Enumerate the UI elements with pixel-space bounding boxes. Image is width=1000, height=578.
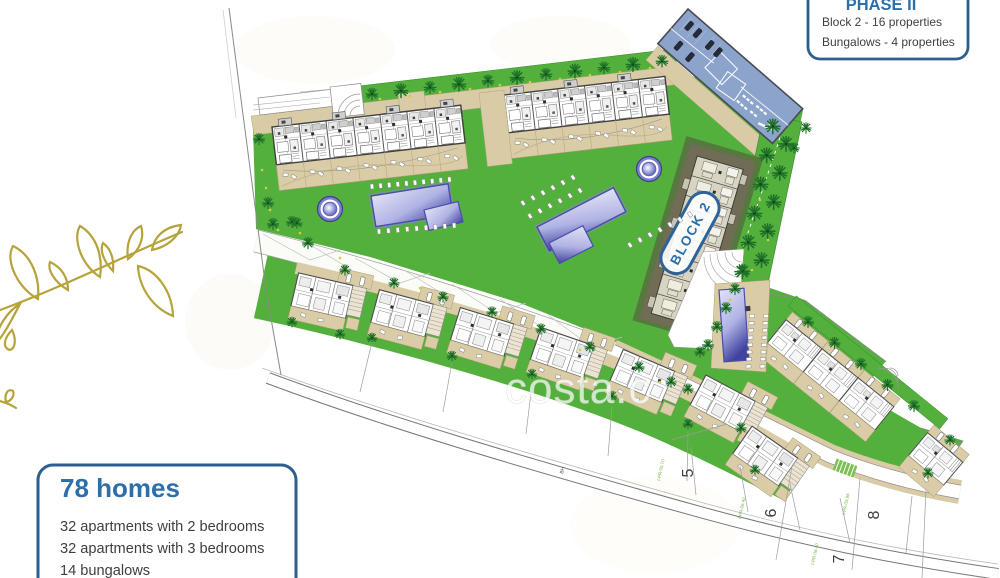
svg-text:6: 6 (763, 508, 780, 517)
svg-text:8: 8 (866, 510, 883, 519)
svg-text:7: 7 (831, 554, 848, 563)
svg-text:5: 5 (680, 468, 697, 477)
svg-text:Block 2 - 16 properties: Block 2 - 16 properties (822, 15, 942, 29)
svg-text:78 homes: 78 homes (60, 473, 180, 503)
svg-text:32 apartments with 3 bedrooms: 32 apartments with 3 bedrooms (60, 541, 264, 557)
svg-text:32 apartments with 2 bedrooms: 32 apartments with 2 bedrooms (60, 519, 264, 535)
svg-text:PHASE II: PHASE II (846, 0, 917, 14)
svg-text:14 bungalows: 14 bungalows (60, 563, 150, 578)
svg-text:costa.c: costa.c (505, 364, 651, 413)
svg-text:Bungalows - 4 properties: Bungalows - 4 properties (822, 35, 955, 49)
